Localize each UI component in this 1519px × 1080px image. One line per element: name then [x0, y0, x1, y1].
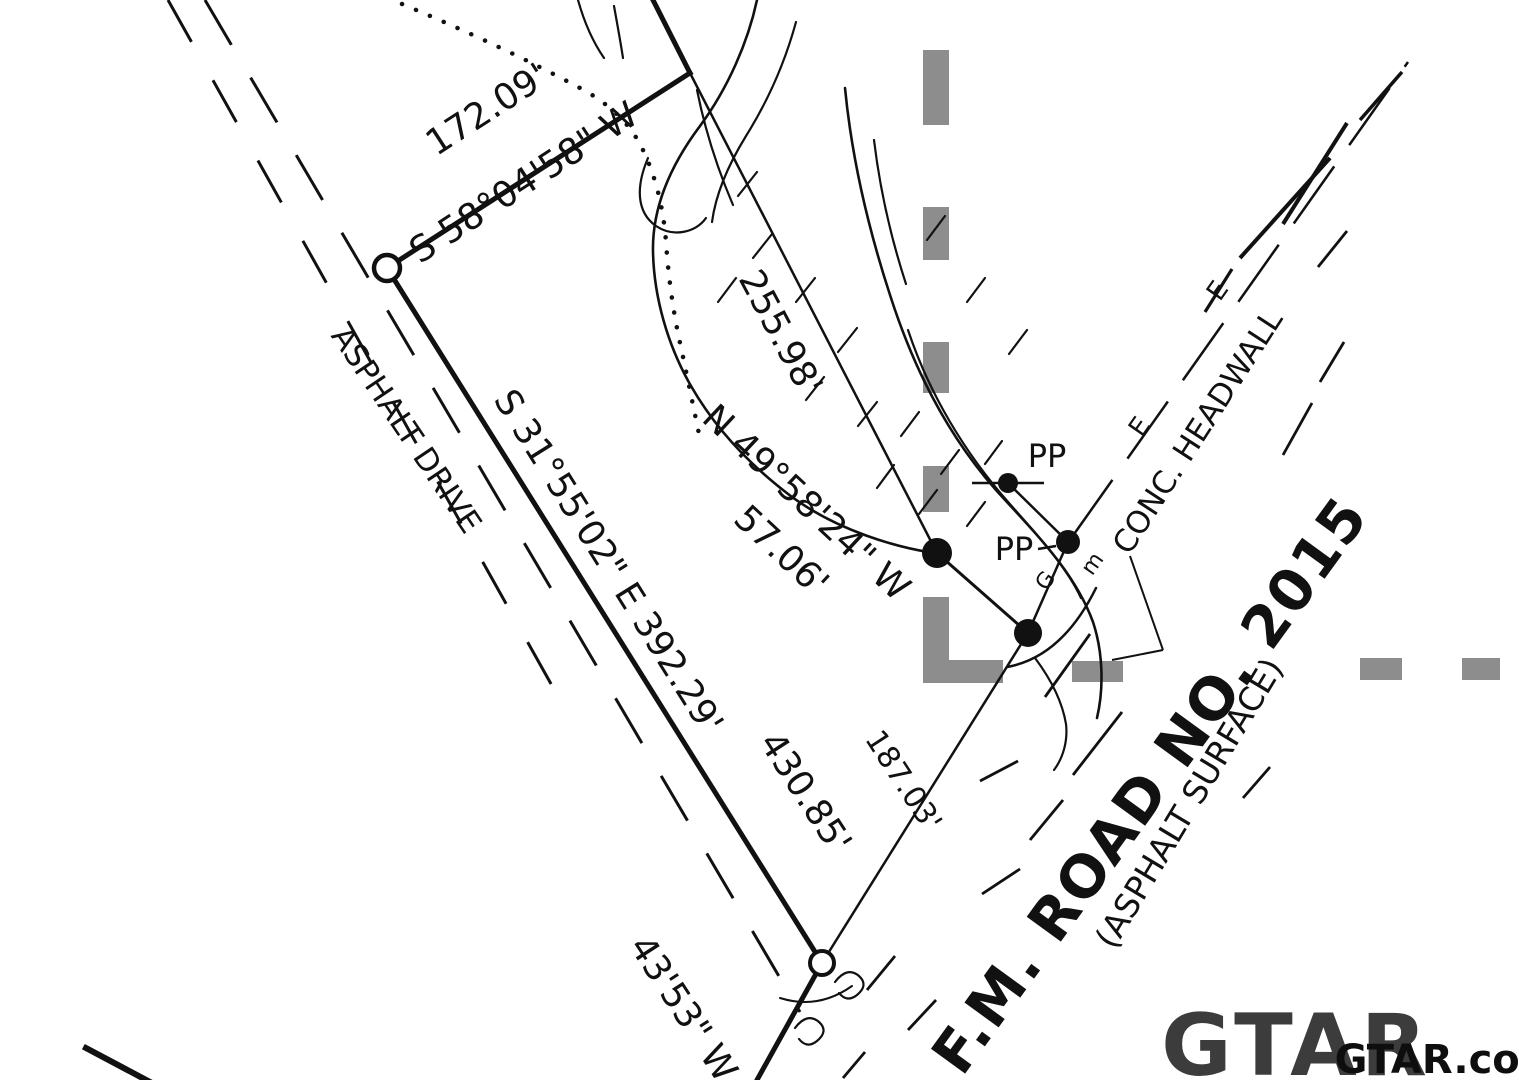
- creek-tick-12: [967, 502, 985, 526]
- survey-plat-page: 172.09'S 58°04'58" WASPHALT DRIVES 31°55…: [0, 0, 1519, 1080]
- road-label-fm-road-2015: F.M. ROAD NO. 2015: [918, 484, 1381, 1080]
- road-edge-dash-16: [1283, 403, 1312, 455]
- utility-mark-m: m: [1077, 548, 1110, 580]
- pp2-label-tie: [1038, 546, 1056, 549]
- culvert-squiggle-2: [795, 1018, 824, 1044]
- road-edge-dash-1: [867, 956, 895, 990]
- road-edge-dash-12: [1283, 123, 1347, 224]
- power-pole-label-1: PP: [1028, 437, 1067, 475]
- creek-tick-9: [941, 450, 959, 474]
- boundary-s43-line: [757, 963, 822, 1080]
- corner-monument-open-2: [810, 951, 834, 975]
- utility-mark-g: G: [1031, 567, 1061, 595]
- road-corner-point: [1014, 619, 1042, 647]
- creek-tick-5: [838, 328, 857, 352]
- asphalt-drive-edge-inner: [205, 0, 800, 1012]
- road-edge-dash-8: [1073, 712, 1122, 775]
- creek-tick-8: [901, 412, 919, 436]
- power-pole-point-2: [1056, 530, 1080, 554]
- power-pole-label-2: PP: [995, 530, 1034, 568]
- headwall-leader-foot: [1112, 650, 1163, 660]
- bearing-partial-43-53-w: 43'53" W: [621, 929, 745, 1080]
- bearing-s31-55-02-e-392-29: S 31°55'02" E 392.29': [485, 383, 731, 742]
- road-edge-dash-13: [1360, 72, 1402, 120]
- highlight-dash-h3: [1462, 658, 1500, 680]
- highlight-dash-h1: [1072, 661, 1123, 682]
- highlight-dash-v1: [923, 50, 949, 125]
- creek-bank-west-inner: [712, 22, 796, 222]
- road-edge-dash-15: [1320, 342, 1344, 382]
- creek-tick-2: [753, 234, 772, 258]
- creek-corner-point: [922, 538, 952, 568]
- southwest-corner-line: [86, 1048, 150, 1080]
- road-label-asphalt-drive: ASPHALT DRIVE: [324, 320, 489, 540]
- highlight-corner-foot: [923, 660, 1003, 683]
- road-edge-dash-2: [908, 1000, 936, 1030]
- road-edge-dash-4: [980, 761, 1018, 781]
- gtar-watermark: GTAR.com: [1335, 1037, 1519, 1080]
- road-edge-dash-14: [1318, 231, 1347, 267]
- creek-top-strand-1: [578, 0, 604, 58]
- electric-line-mark-2: E: [1123, 412, 1157, 443]
- creek-tick-13: [877, 465, 894, 488]
- highlight-dash-h2: [1360, 658, 1402, 680]
- creek-top-strand-2: [614, 6, 623, 58]
- boundary-s31-line: [387, 268, 822, 963]
- boundary-north-segment: [653, 0, 690, 73]
- survey-plat-canvas: 172.09'S 58°04'58" WASPHALT DRIVES 31°55…: [0, 0, 1519, 1080]
- creek-tick-10: [985, 441, 1002, 464]
- road-edge-dash-5: [982, 869, 1020, 894]
- creek-tick-16: [1009, 330, 1027, 354]
- corner-monument-open-1: [374, 255, 400, 281]
- road-edge-dash-9: [1243, 767, 1270, 798]
- distance-430-85: 430.85': [751, 725, 859, 861]
- road-edge-dash-6: [1030, 800, 1063, 840]
- headwall-leader-stem: [1130, 556, 1163, 650]
- overhead-electric-line: [1072, 62, 1408, 537]
- distance-255-98: 255.98': [730, 263, 830, 402]
- creek-bank-east: [845, 88, 1102, 718]
- road-edge-dash-3: [843, 1052, 865, 1078]
- electric-line-mark-1: E: [1201, 276, 1235, 307]
- creek-tick-15: [967, 278, 985, 302]
- distance-172-09: 172.09': [419, 56, 555, 164]
- power-pole-point-1: [998, 473, 1018, 493]
